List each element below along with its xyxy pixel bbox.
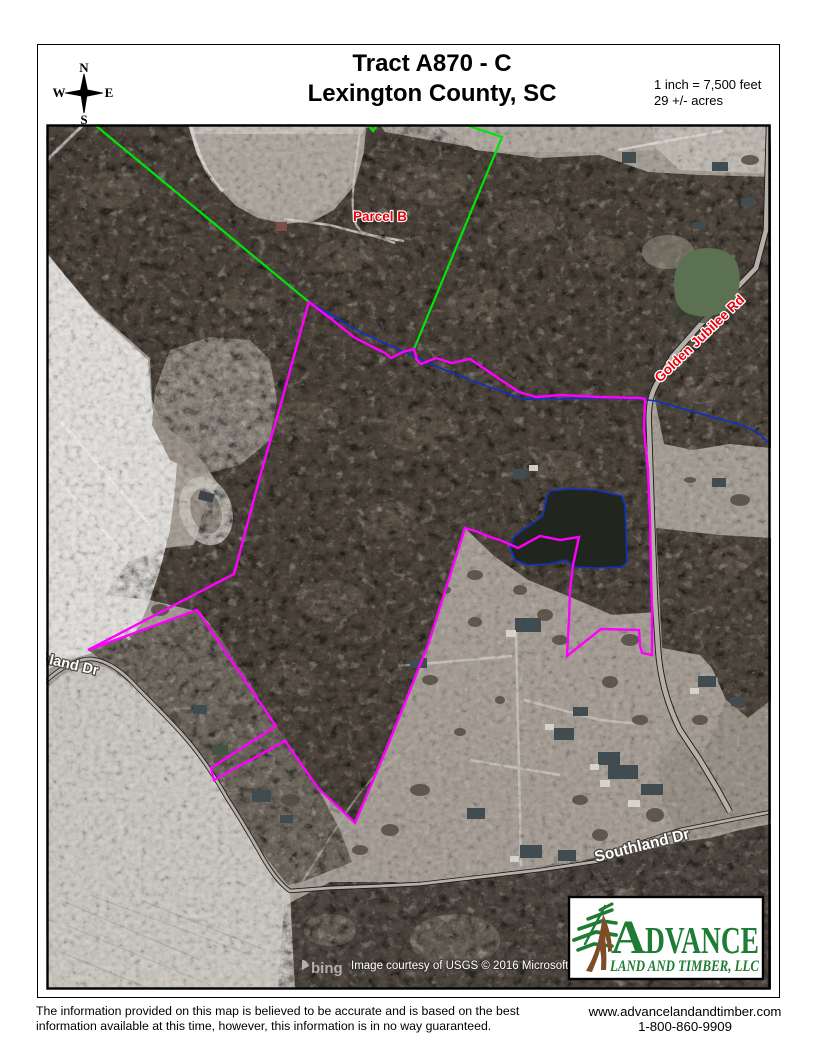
svg-text:Image courtesy of USGS © 2016: Image courtesy of USGS © 2016 Microsoft: [351, 960, 569, 972]
svg-text:N: N: [79, 60, 89, 75]
svg-text:A: A: [611, 911, 646, 964]
svg-text:bing: bing: [311, 960, 343, 977]
svg-text:Parcel B: Parcel B: [353, 209, 407, 224]
svg-text:LAND AND TIMBER, LLC: LAND AND TIMBER, LLC: [609, 958, 759, 975]
svg-text:W: W: [53, 85, 66, 100]
svg-text:DVANCE: DVANCE: [645, 920, 759, 962]
svg-text:E: E: [105, 85, 114, 100]
